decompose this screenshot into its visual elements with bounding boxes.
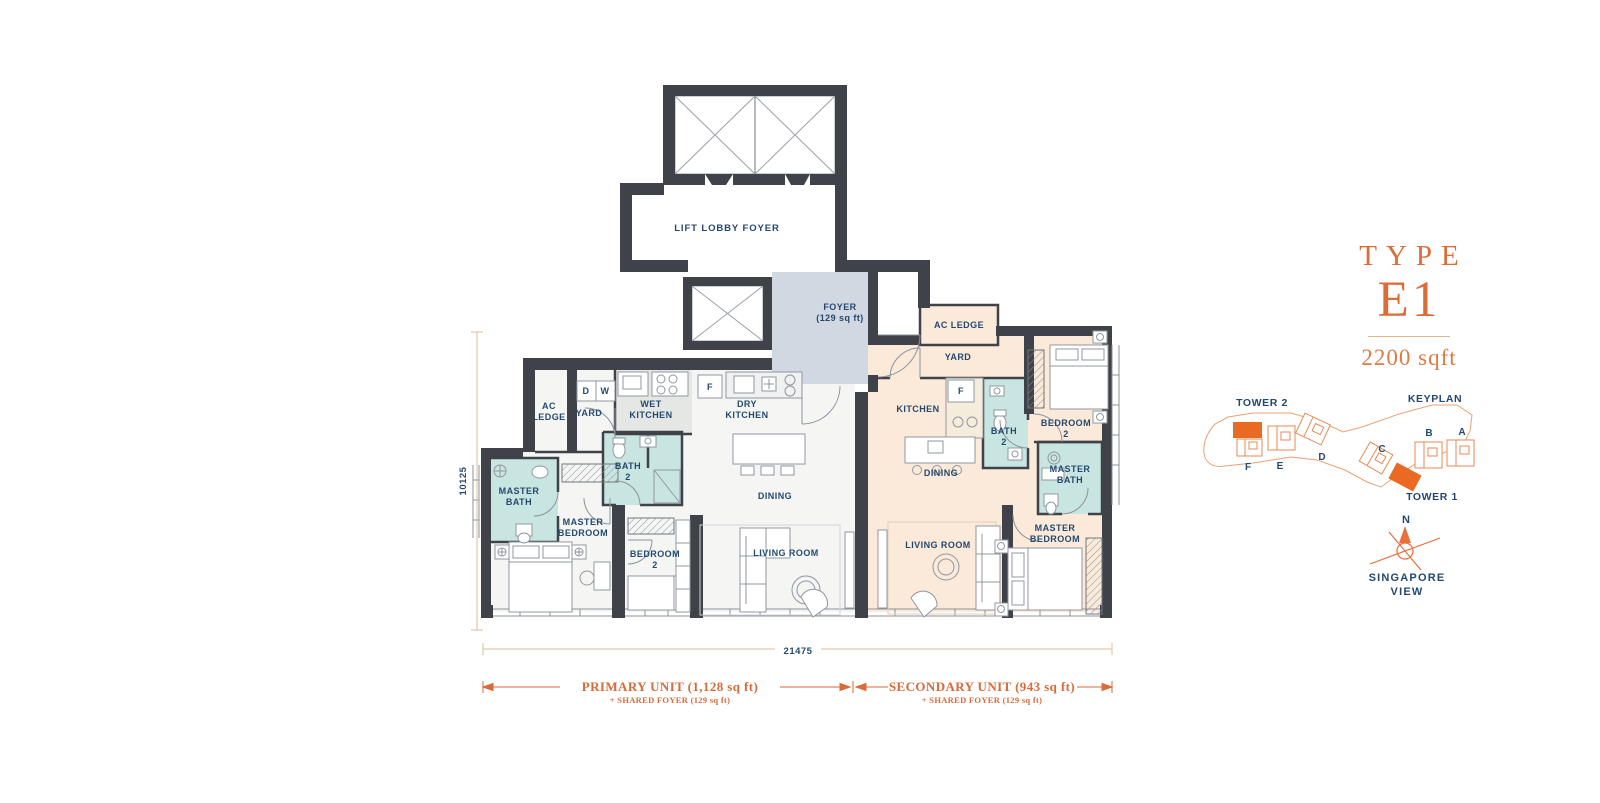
- highlighted-unit-tower2: [1233, 422, 1262, 438]
- label-dryer: D: [583, 386, 590, 396]
- view-line1: SINGAPORE: [1352, 572, 1462, 586]
- unit-legend: PRIMARY UNIT (1,128 sq ft) + SHARED FOYE…: [483, 679, 1112, 705]
- compass-north-label: N: [1402, 514, 1410, 526]
- type-label: TYPE: [1334, 240, 1484, 273]
- legend-secondary-title: SECONDARY UNIT (943 sq ft): [889, 679, 1075, 694]
- label-living-primary: LIVING ROOM: [753, 548, 818, 558]
- view-line2: VIEW: [1352, 586, 1462, 600]
- label-dry-kitchen-2: KITCHEN: [725, 410, 768, 420]
- view-orientation-label: SINGAPORE VIEW: [1352, 572, 1462, 600]
- label-washer: W: [601, 386, 610, 396]
- label-wet-kitchen-1: WET: [640, 399, 661, 409]
- label-wet-kitchen-2: KITCHEN: [629, 410, 672, 420]
- label-master-bedroom-secondary-1: MASTER: [1035, 523, 1076, 533]
- unit-type-block: TYPE E1 2200 sqft: [1334, 240, 1484, 371]
- keyplan-heading: KEYPLAN: [1408, 393, 1462, 405]
- label-bath2-secondary-1: BATH: [991, 426, 1017, 436]
- unit-letter-a: A: [1458, 427, 1465, 438]
- label-dry-kitchen-1: DRY: [737, 399, 757, 409]
- tower1-label: TOWER 1: [1406, 491, 1458, 503]
- label-yard-secondary: YARD: [945, 352, 972, 362]
- type-code: E1: [1334, 275, 1484, 326]
- label-dining-primary: DINING: [758, 491, 792, 501]
- label-living-secondary: LIVING ROOM: [905, 540, 970, 550]
- label-bath2-secondary-2: 2: [1001, 437, 1006, 447]
- label-ac-ledge-secondary: AC LEDGE: [934, 320, 984, 330]
- label-bath2-primary-2: 2: [625, 472, 630, 482]
- dim-width: 21475: [784, 646, 813, 657]
- legend-secondary-subtitle: + SHARED FOYER (129 sq ft): [922, 695, 1043, 705]
- label-dining-secondary: DINING: [924, 468, 958, 478]
- compass: N: [1356, 512, 1452, 570]
- unit-letter-b: B: [1425, 428, 1432, 439]
- floor-plan-drawing: LIFT LOBBY FOYER FOYER (129 sq ft) AC LE…: [440, 70, 1140, 720]
- label-bath2-primary-1: BATH: [615, 461, 641, 471]
- unit-letter-f: F: [1245, 462, 1251, 473]
- label-master-bath-primary-2: BATH: [506, 497, 532, 507]
- compass-rose-icon: [1370, 526, 1440, 570]
- type-divider: [1368, 336, 1450, 337]
- tower2-label: TOWER 2: [1236, 397, 1288, 409]
- label-master-bath-primary-1: MASTER: [499, 486, 540, 496]
- unit-letter-c: C: [1378, 444, 1385, 455]
- label-foyer-area: (129 sq ft): [816, 313, 863, 323]
- dim-height: 10125: [458, 466, 469, 495]
- keyplan: KEYPLAN TOWER 2 TOWER 1 F E D C B A: [1195, 392, 1480, 510]
- label-yard-primary: YARD: [576, 408, 603, 418]
- label-master-bedroom-primary-2: BEDROOM: [558, 528, 608, 538]
- label-ac-ledge-2: LEDGE: [532, 412, 565, 422]
- type-area: 2200 sqft: [1334, 345, 1484, 371]
- legend-primary-subtitle: + SHARED FOYER (129 sq ft): [610, 695, 731, 705]
- label-master-bedroom-primary-1: MASTER: [563, 517, 604, 527]
- label-master-bath-secondary-1: MASTER: [1050, 464, 1091, 474]
- label-bedroom2-secondary-1: BEDROOM: [1041, 418, 1091, 428]
- label-bedroom2-primary-2: 2: [652, 560, 657, 570]
- unit-clusters: [1233, 413, 1474, 491]
- label-master-bath-secondary-2: BATH: [1057, 475, 1083, 485]
- label-ac-ledge-1: AC: [542, 401, 556, 411]
- label-master-bedroom-secondary-2: BEDROOM: [1030, 534, 1080, 544]
- label-bedroom2-primary-1: BEDROOM: [630, 549, 680, 559]
- label-lift-lobby: LIFT LOBBY FOYER: [674, 223, 780, 234]
- label-foyer: FOYER: [823, 302, 856, 312]
- legend-primary-title: PRIMARY UNIT (1,128 sq ft): [582, 679, 758, 694]
- label-bedroom2-secondary-2: 2: [1063, 429, 1068, 439]
- unit-letter-e: E: [1277, 461, 1284, 472]
- label-kitchen-secondary: KITCHEN: [896, 404, 939, 414]
- unit-letter-d: D: [1318, 452, 1325, 463]
- label-fridge-primary: F: [707, 382, 713, 392]
- label-fridge-secondary: F: [958, 386, 964, 396]
- floorplan-page: LIFT LOBBY FOYER FOYER (129 sq ft) AC LE…: [0, 0, 1600, 803]
